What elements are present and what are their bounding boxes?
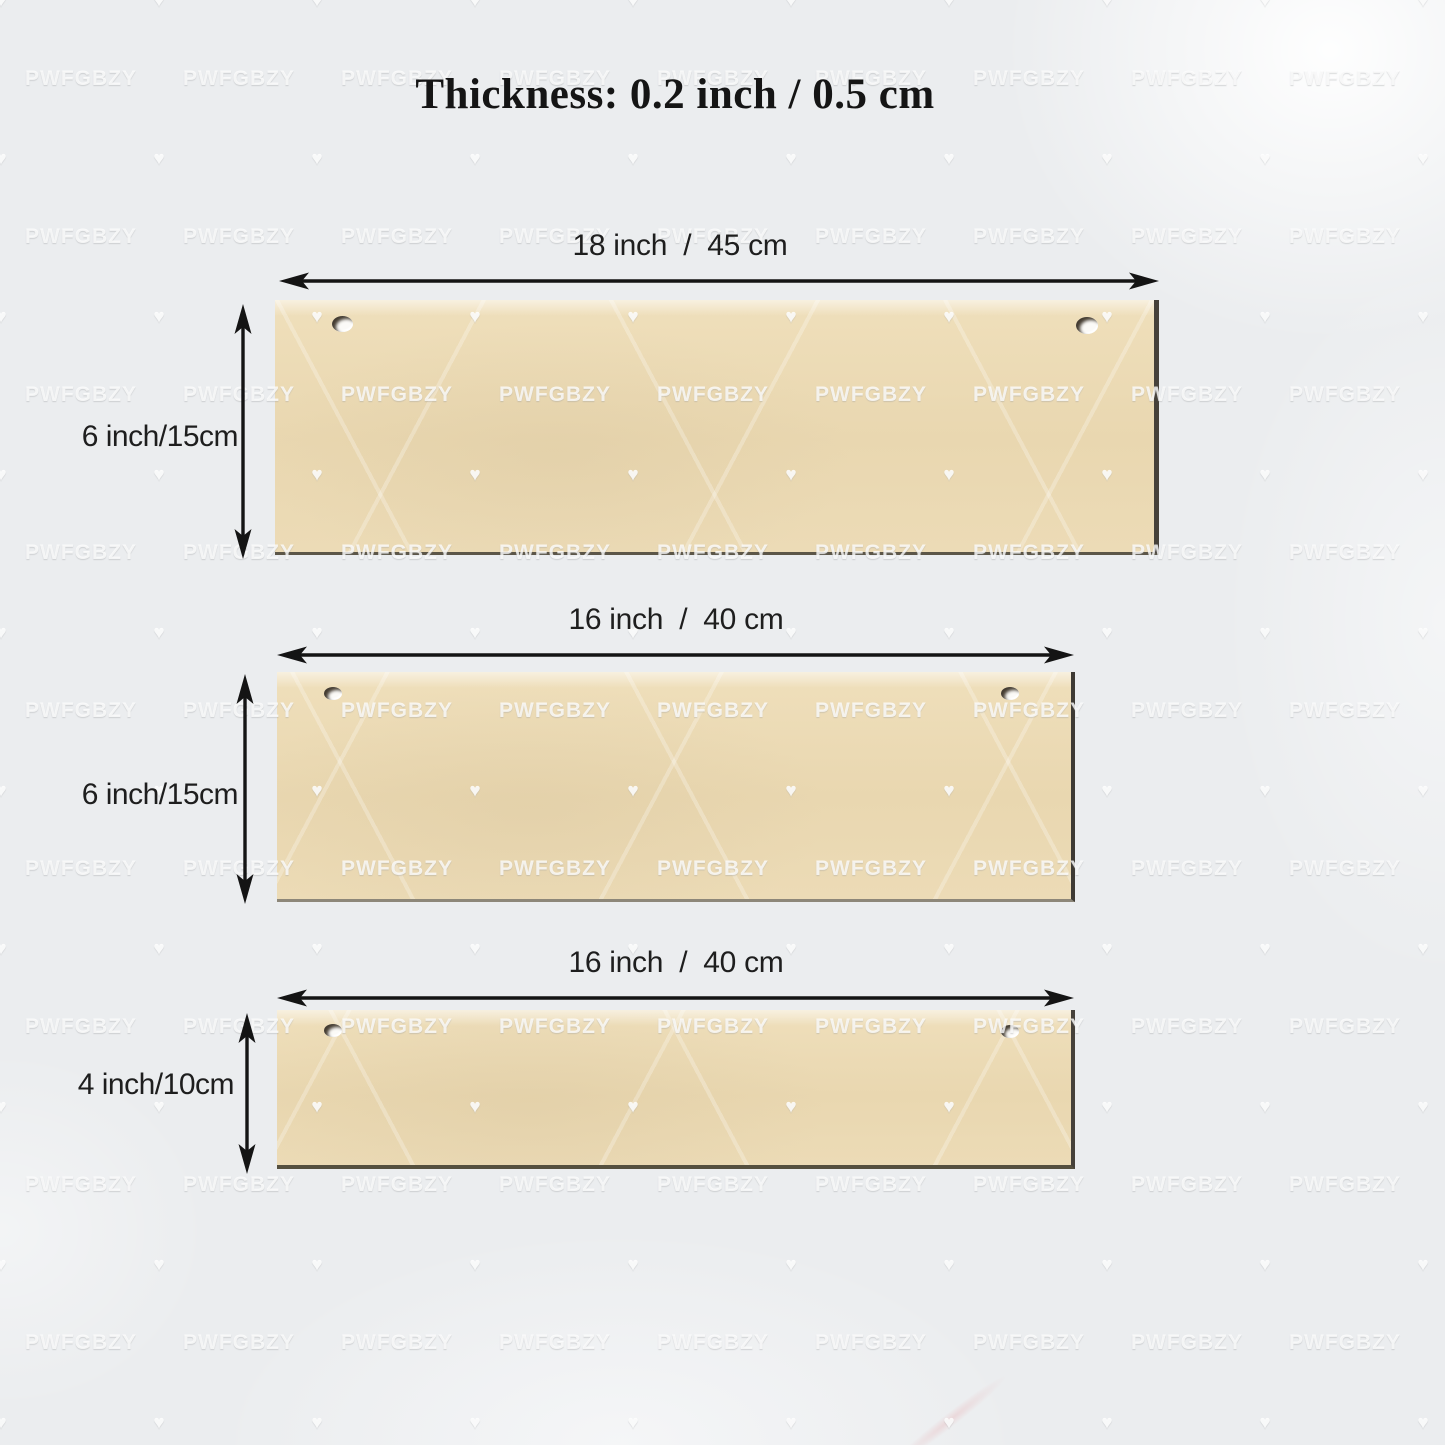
watermark-text: PWFGBZY bbox=[1289, 699, 1401, 723]
watermark-heart-diamond-icon: ♥ bbox=[0, 1256, 7, 1275]
watermark-heart-diamond-icon: ♥ bbox=[153, 624, 164, 643]
watermark-heart-diamond-icon: ♥ bbox=[311, 150, 322, 169]
watermark-heart-diamond-icon: ♥ bbox=[1259, 0, 1270, 11]
hanging-hole bbox=[1076, 317, 1098, 334]
watermark-text: PWFGBZY bbox=[815, 1173, 927, 1197]
watermark-text: PWFGBZY bbox=[1131, 857, 1243, 881]
watermark-heart-diamond-icon: ♥ bbox=[0, 466, 7, 485]
watermark-heart-diamond-icon: ♥ bbox=[153, 940, 164, 959]
width-dimension-arrow bbox=[275, 987, 1076, 1009]
watermark-text: PWFGBZY bbox=[1131, 1015, 1243, 1039]
watermark-heart-diamond-icon: ♥ bbox=[785, 0, 796, 11]
watermark-heart-diamond-icon: ♥ bbox=[1259, 150, 1270, 169]
watermark-heart-diamond-icon: ♥ bbox=[0, 150, 7, 169]
watermark-text: PWFGBZY bbox=[1131, 1331, 1243, 1355]
watermark-text: PWFGBZY bbox=[815, 1331, 927, 1355]
watermark-heart-diamond-icon: ♥ bbox=[469, 1414, 480, 1433]
watermark-heart-diamond-icon: ♥ bbox=[1101, 624, 1112, 643]
width-label-board3: 16 inch / 40 cm bbox=[276, 946, 1076, 980]
watermark-heart-diamond-icon: ♥ bbox=[311, 0, 322, 11]
watermark-text: PWFGBZY bbox=[1289, 1331, 1401, 1355]
watermark-text: PWFGBZY bbox=[657, 1331, 769, 1355]
watermark-text: PWFGBZY bbox=[973, 1173, 1085, 1197]
hanging-hole bbox=[324, 1024, 342, 1037]
watermark-heart-diamond-icon: ♥ bbox=[0, 1414, 7, 1433]
watermark-text: PWFGBZY bbox=[25, 699, 137, 723]
watermark-heart-diamond-icon: ♥ bbox=[153, 150, 164, 169]
watermark-heart-diamond-icon: ♥ bbox=[153, 1256, 164, 1275]
watermark-heart-diamond-icon: ♥ bbox=[153, 1414, 164, 1433]
watermark-heart-diamond-icon: ♥ bbox=[943, 1256, 954, 1275]
hanging-hole bbox=[1001, 1025, 1019, 1038]
watermark-heart-diamond-icon: ♥ bbox=[153, 308, 164, 327]
watermark-heart-diamond-icon: ♥ bbox=[469, 150, 480, 169]
watermark-heart-diamond-icon: ♥ bbox=[1417, 0, 1428, 11]
watermark-heart-diamond-icon: ♥ bbox=[1101, 1256, 1112, 1275]
watermark-text: PWFGBZY bbox=[1131, 1173, 1243, 1197]
watermark-heart-diamond-icon: ♥ bbox=[1259, 1098, 1270, 1117]
pink-smudge-decoration bbox=[851, 1329, 1048, 1445]
watermark-text: PWFGBZY bbox=[1131, 699, 1243, 723]
watermark-text: PWFGBZY bbox=[341, 1173, 453, 1197]
watermark-text: PWFGBZY bbox=[1289, 383, 1401, 407]
watermark-heart-diamond-icon: ♥ bbox=[785, 1256, 796, 1275]
watermark-text: PWFGBZY bbox=[25, 383, 137, 407]
watermark-heart-diamond-icon: ♥ bbox=[0, 782, 7, 801]
watermark-heart-diamond-icon: ♥ bbox=[1417, 624, 1428, 643]
watermark-heart-diamond-icon: ♥ bbox=[1417, 466, 1428, 485]
watermark-heart-diamond-icon: ♥ bbox=[1417, 1256, 1428, 1275]
watermark-heart-diamond-icon: ♥ bbox=[311, 1256, 322, 1275]
watermark-heart-diamond-icon: ♥ bbox=[0, 1098, 7, 1117]
watermark-text: PWFGBZY bbox=[183, 1173, 295, 1197]
watermark-heart-diamond-icon: ♥ bbox=[0, 624, 7, 643]
watermark-text: PWFGBZY bbox=[499, 1331, 611, 1355]
wood-plaque-small bbox=[277, 1010, 1075, 1169]
product-dimension-diagram: ♥PWFGBZY♥PWFGBZY♥PWFGBZY♥PWFGBZY♥PWFGBZY… bbox=[0, 0, 1445, 1445]
watermark-heart-diamond-icon: ♥ bbox=[785, 1414, 796, 1433]
width-dimension-arrow bbox=[277, 270, 1161, 292]
watermark-heart-diamond-icon: ♥ bbox=[153, 466, 164, 485]
watermark-heart-diamond-icon: ♥ bbox=[1101, 1414, 1112, 1433]
watermark-text: PWFGBZY bbox=[25, 1015, 137, 1039]
watermark-heart-diamond-icon: ♥ bbox=[1101, 150, 1112, 169]
watermark-text: PWFGBZY bbox=[25, 1173, 137, 1197]
watermark-text: PWFGBZY bbox=[499, 1173, 611, 1197]
watermark-text: PWFGBZY bbox=[1289, 857, 1401, 881]
watermark-heart-diamond-icon: ♥ bbox=[1259, 782, 1270, 801]
watermark-heart-diamond-icon: ♥ bbox=[1417, 150, 1428, 169]
hanging-hole bbox=[1001, 687, 1019, 700]
watermark-heart-diamond-icon: ♥ bbox=[1417, 1414, 1428, 1433]
watermark-text: PWFGBZY bbox=[25, 857, 137, 881]
watermark-heart-diamond-icon: ♥ bbox=[1417, 1098, 1428, 1117]
watermark-text: PWFGBZY bbox=[1131, 225, 1243, 249]
hanging-hole bbox=[332, 316, 353, 332]
watermark-heart-diamond-icon: ♥ bbox=[1259, 1256, 1270, 1275]
height-label-board2: 6 inch/15cm bbox=[66, 778, 238, 812]
watermark-heart-diamond-icon: ♥ bbox=[785, 150, 796, 169]
watermark-text: PWFGBZY bbox=[1289, 1173, 1401, 1197]
thickness-title: Thickness: 0.2 inch / 0.5 cm bbox=[0, 70, 1350, 119]
width-label-board2: 16 inch / 40 cm bbox=[276, 603, 1076, 637]
watermark-text: PWFGBZY bbox=[657, 1173, 769, 1197]
watermark-heart-diamond-icon: ♥ bbox=[1101, 1098, 1112, 1117]
watermark-heart-diamond-icon: ♥ bbox=[943, 150, 954, 169]
watermark-heart-diamond-icon: ♥ bbox=[627, 1256, 638, 1275]
watermark-heart-diamond-icon: ♥ bbox=[627, 0, 638, 11]
height-label-board3: 4 inch/10cm bbox=[62, 1068, 234, 1102]
watermark-heart-diamond-icon: ♥ bbox=[1417, 782, 1428, 801]
watermark-heart-diamond-icon: ♥ bbox=[1259, 940, 1270, 959]
height-dimension-arrow bbox=[236, 1011, 258, 1176]
watermark-heart-diamond-icon: ♥ bbox=[153, 0, 164, 11]
watermark-heart-diamond-icon: ♥ bbox=[627, 150, 638, 169]
watermark-heart-diamond-icon: ♥ bbox=[469, 0, 480, 11]
height-label-board1: 6 inch/15cm bbox=[66, 420, 238, 454]
watermark-heart-diamond-icon: ♥ bbox=[469, 1256, 480, 1275]
watermark-heart-diamond-icon: ♥ bbox=[1259, 624, 1270, 643]
watermark-heart-diamond-icon: ♥ bbox=[0, 940, 7, 959]
watermark-text: PWFGBZY bbox=[1289, 1015, 1401, 1039]
watermark-heart-diamond-icon: ♥ bbox=[311, 1414, 322, 1433]
watermark-heart-diamond-icon: ♥ bbox=[943, 0, 954, 11]
watermark-text: PWFGBZY bbox=[1289, 541, 1401, 565]
watermark-text: PWFGBZY bbox=[25, 1331, 137, 1355]
width-label-board1: 18 inch / 45 cm bbox=[235, 229, 1125, 263]
watermark-text: PWFGBZY bbox=[25, 225, 137, 249]
watermark-text: PWFGBZY bbox=[25, 541, 137, 565]
watermark-heart-diamond-icon: ♥ bbox=[1101, 782, 1112, 801]
watermark-heart-diamond-icon: ♥ bbox=[1417, 940, 1428, 959]
watermark-heart-diamond-icon: ♥ bbox=[0, 308, 7, 327]
watermark-text: PWFGBZY bbox=[1289, 225, 1401, 249]
watermark-text: PWFGBZY bbox=[341, 1331, 453, 1355]
watermark-heart-diamond-icon: ♥ bbox=[1417, 308, 1428, 327]
wood-plaque-large bbox=[275, 300, 1159, 555]
watermark-heart-diamond-icon: ♥ bbox=[1259, 1414, 1270, 1433]
watermark-heart-diamond-icon: ♥ bbox=[1259, 308, 1270, 327]
width-dimension-arrow bbox=[275, 644, 1076, 666]
wood-plaque-medium bbox=[277, 672, 1075, 902]
watermark-text: PWFGBZY bbox=[183, 1331, 295, 1355]
watermark-heart-diamond-icon: ♥ bbox=[1101, 0, 1112, 11]
watermark-heart-diamond-icon: ♥ bbox=[1259, 466, 1270, 485]
hanging-hole bbox=[324, 687, 342, 700]
watermark-heart-diamond-icon: ♥ bbox=[627, 1414, 638, 1433]
watermark-heart-diamond-icon: ♥ bbox=[0, 0, 7, 11]
watermark-heart-diamond-icon: ♥ bbox=[1101, 940, 1112, 959]
